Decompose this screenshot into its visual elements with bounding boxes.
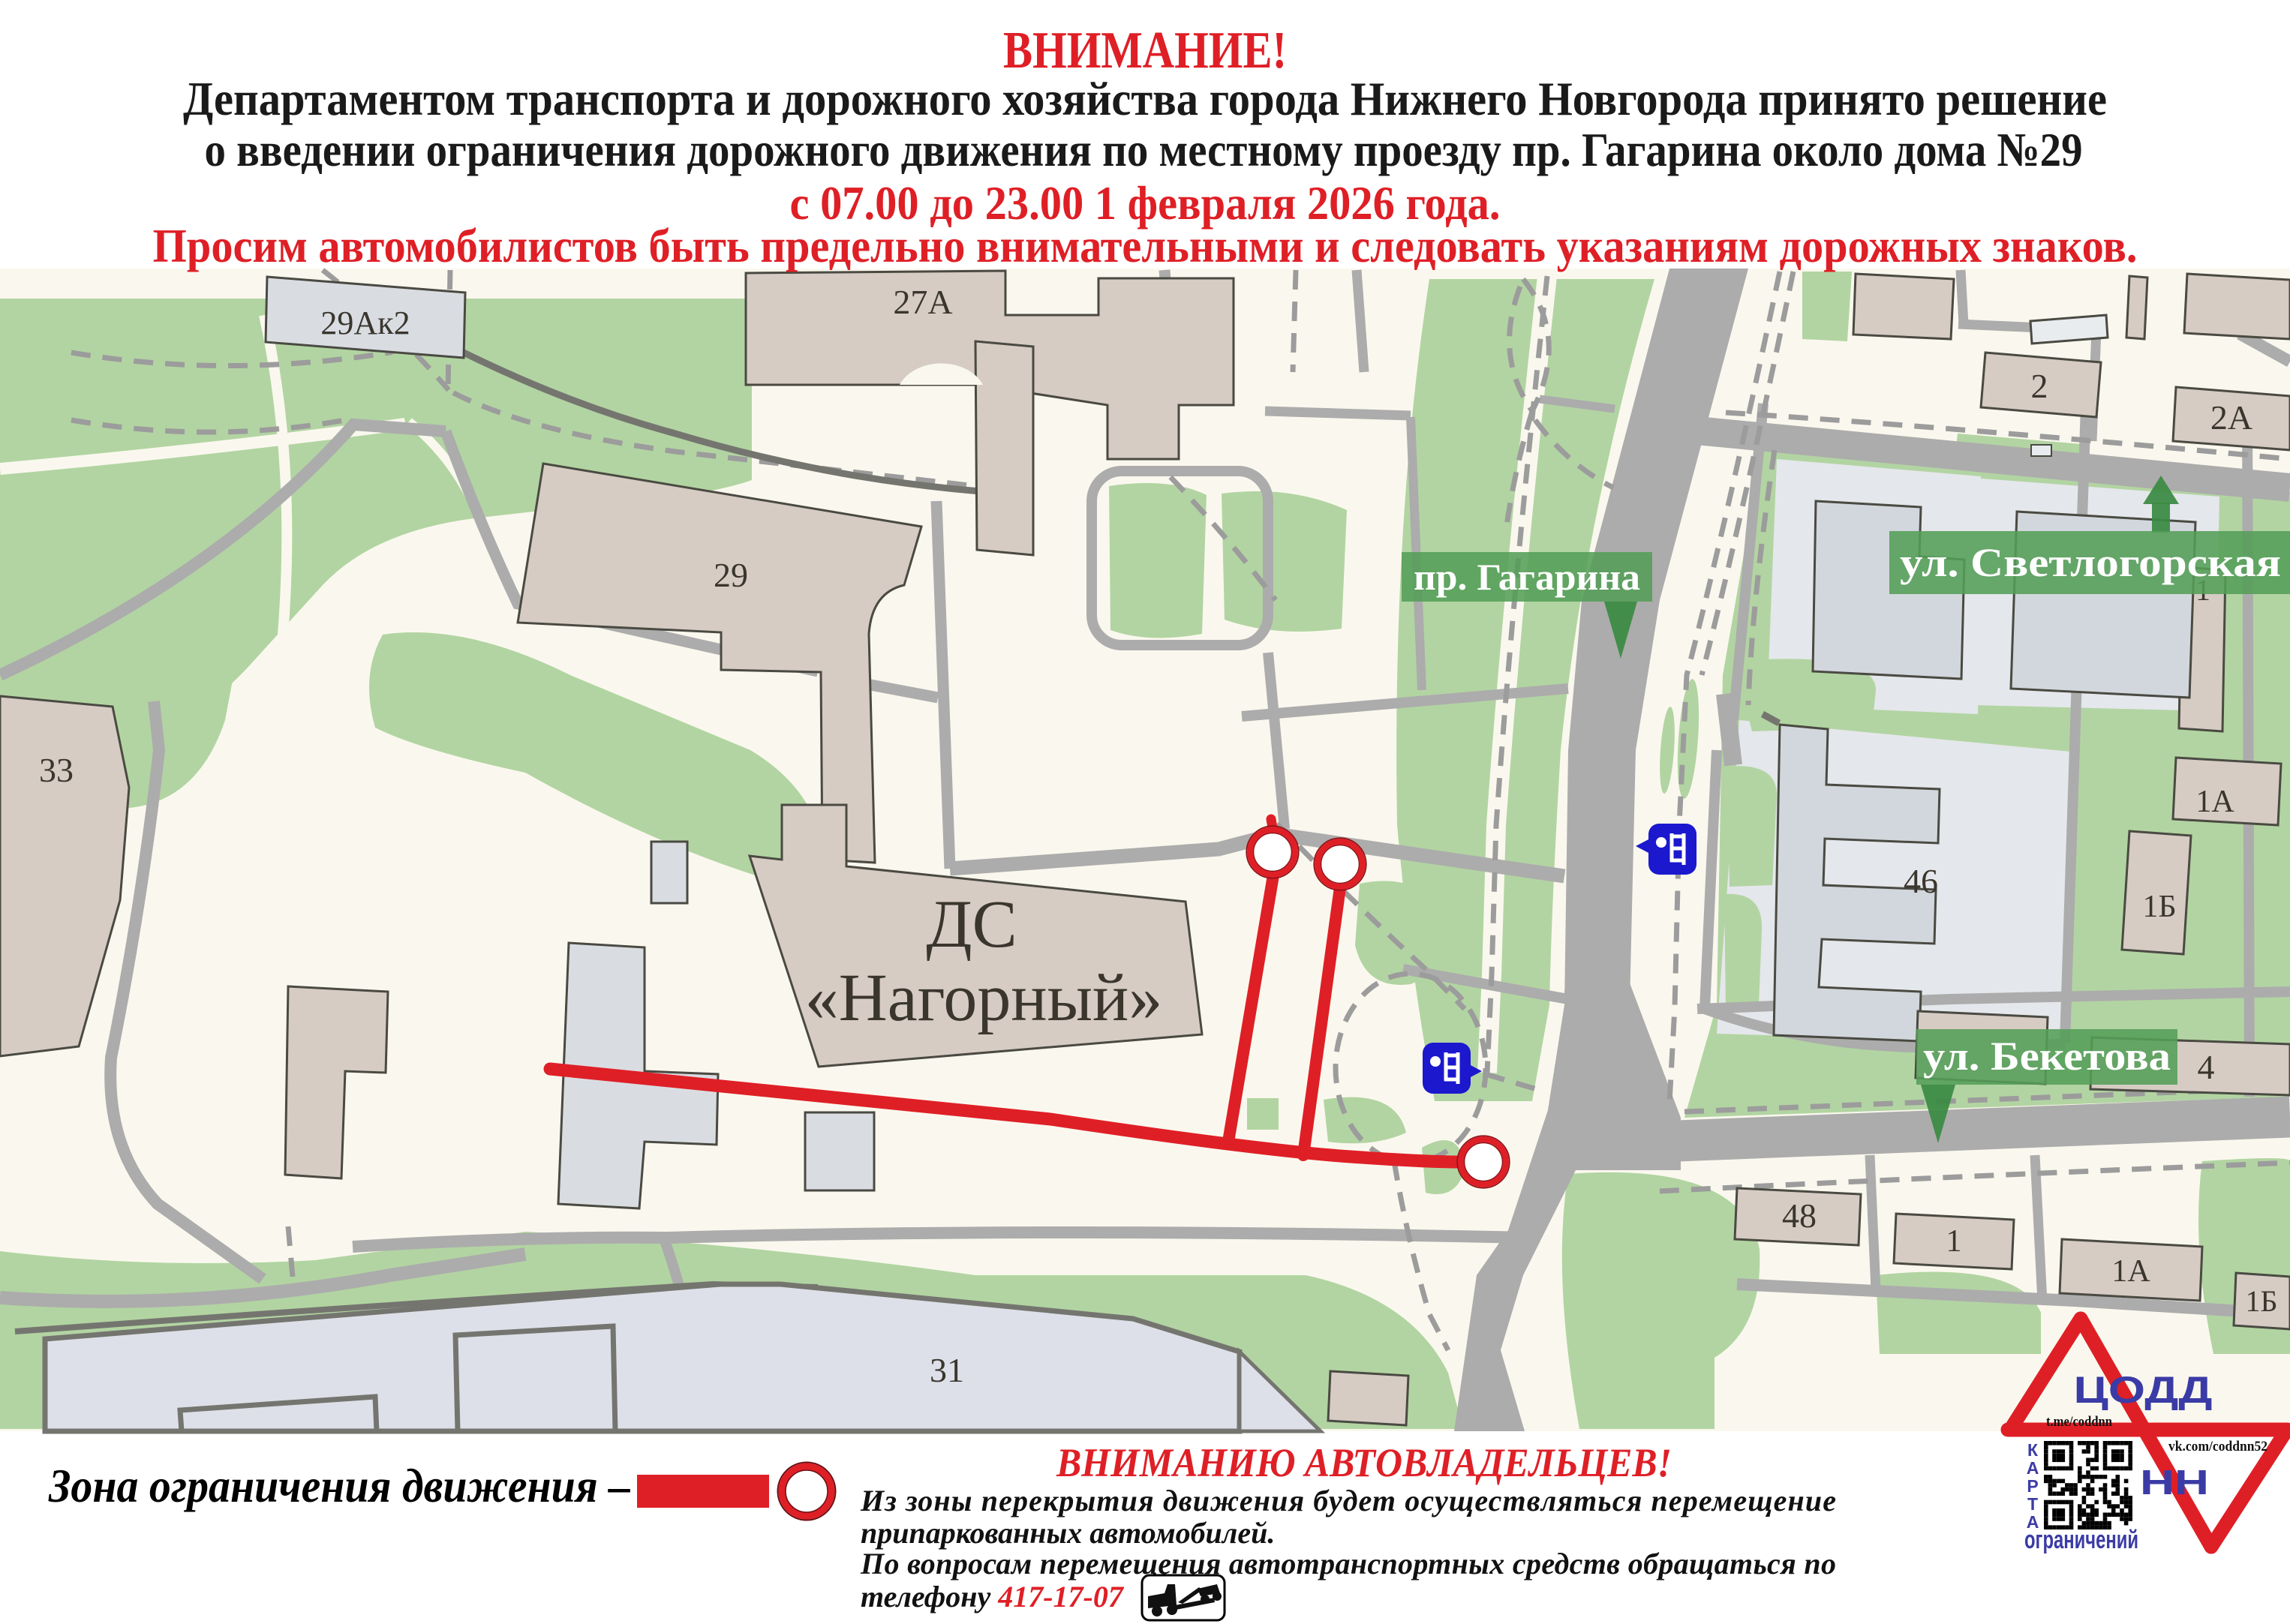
- svg-text:1А: 1А: [2195, 785, 2234, 819]
- svg-text:Департаментом транспорта и дор: Департаментом транспорта и дорожного хоз…: [183, 72, 2107, 125]
- svg-text:t.me/coddnn: t.me/coddnn: [2046, 1414, 2112, 1430]
- svg-text:Зона ограничения движения –: Зона ограничения движения –: [48, 1459, 630, 1512]
- svg-text:К: К: [2027, 1440, 2039, 1460]
- svg-text:46: 46: [1904, 862, 1938, 900]
- svg-text:ул. Светлогорская: ул. Светлогорская: [1900, 540, 2281, 585]
- svg-text:Из зоны перекрытия движения бу: Из зоны перекрытия движения будет осущес…: [860, 1484, 1836, 1517]
- svg-text:vk.com/coddnn52: vk.com/coddnn52: [2168, 1439, 2267, 1454]
- svg-text:29: 29: [714, 556, 748, 594]
- svg-text:48: 48: [1782, 1196, 1817, 1235]
- svg-text:ДС: ДС: [926, 887, 1017, 962]
- svg-text:4: 4: [2198, 1048, 2215, 1086]
- svg-text:ограничений: ограничений: [2024, 1526, 2138, 1554]
- svg-text:31: 31: [930, 1351, 964, 1389]
- svg-text:2А: 2А: [2210, 398, 2252, 437]
- svg-text:ВНИМАНИЕ!: ВНИМАНИЕ!: [1003, 22, 1287, 80]
- svg-text:1А: 1А: [2111, 1254, 2150, 1289]
- svg-text:пр. Гагарина: пр. Гагарина: [1414, 556, 1640, 598]
- svg-text:телефону 417-17-07: телефону 417-17-07: [861, 1580, 1125, 1613]
- svg-text:Р: Р: [2027, 1476, 2038, 1496]
- svg-text:1: 1: [1946, 1224, 1962, 1259]
- svg-text:А: А: [2027, 1458, 2039, 1478]
- svg-text:ВНИМАНИЮ АВТОВЛАДЕЛЬЦЕВ!: ВНИМАНИЮ АВТОВЛАДЕЛЬЦЕВ!: [1056, 1440, 1672, 1485]
- svg-text:33: 33: [39, 751, 74, 789]
- svg-text:ул. Бекетова: ул. Бекетова: [1923, 1034, 2171, 1079]
- svg-text:НН: НН: [2140, 1463, 2209, 1502]
- svg-text:«Нагорный»: «Нагорный»: [805, 961, 1162, 1035]
- svg-text:ЦОДД: ЦОДД: [2074, 1369, 2213, 1411]
- svg-text:припаркованных автомобилей.: припаркованных автомобилей.: [861, 1516, 1275, 1550]
- svg-text:о введении ограничения дорожно: о введении ограничения дорожного движени…: [205, 123, 2083, 176]
- svg-text:А: А: [2027, 1512, 2039, 1532]
- svg-text:2: 2: [2031, 367, 2048, 405]
- svg-text:Т: Т: [2027, 1494, 2038, 1514]
- svg-text:29Ак2: 29Ак2: [320, 305, 410, 341]
- svg-text:1Б: 1Б: [2142, 890, 2176, 924]
- svg-text:1Б: 1Б: [2246, 1284, 2278, 1318]
- svg-text:Просим автомобилистов быть пре: Просим автомобилистов быть предельно вни…: [153, 219, 2138, 272]
- svg-text:27А: 27А: [893, 283, 952, 321]
- svg-text:По вопросам перемещения автотр: По вопросам перемещения автотранспортных…: [860, 1547, 1836, 1580]
